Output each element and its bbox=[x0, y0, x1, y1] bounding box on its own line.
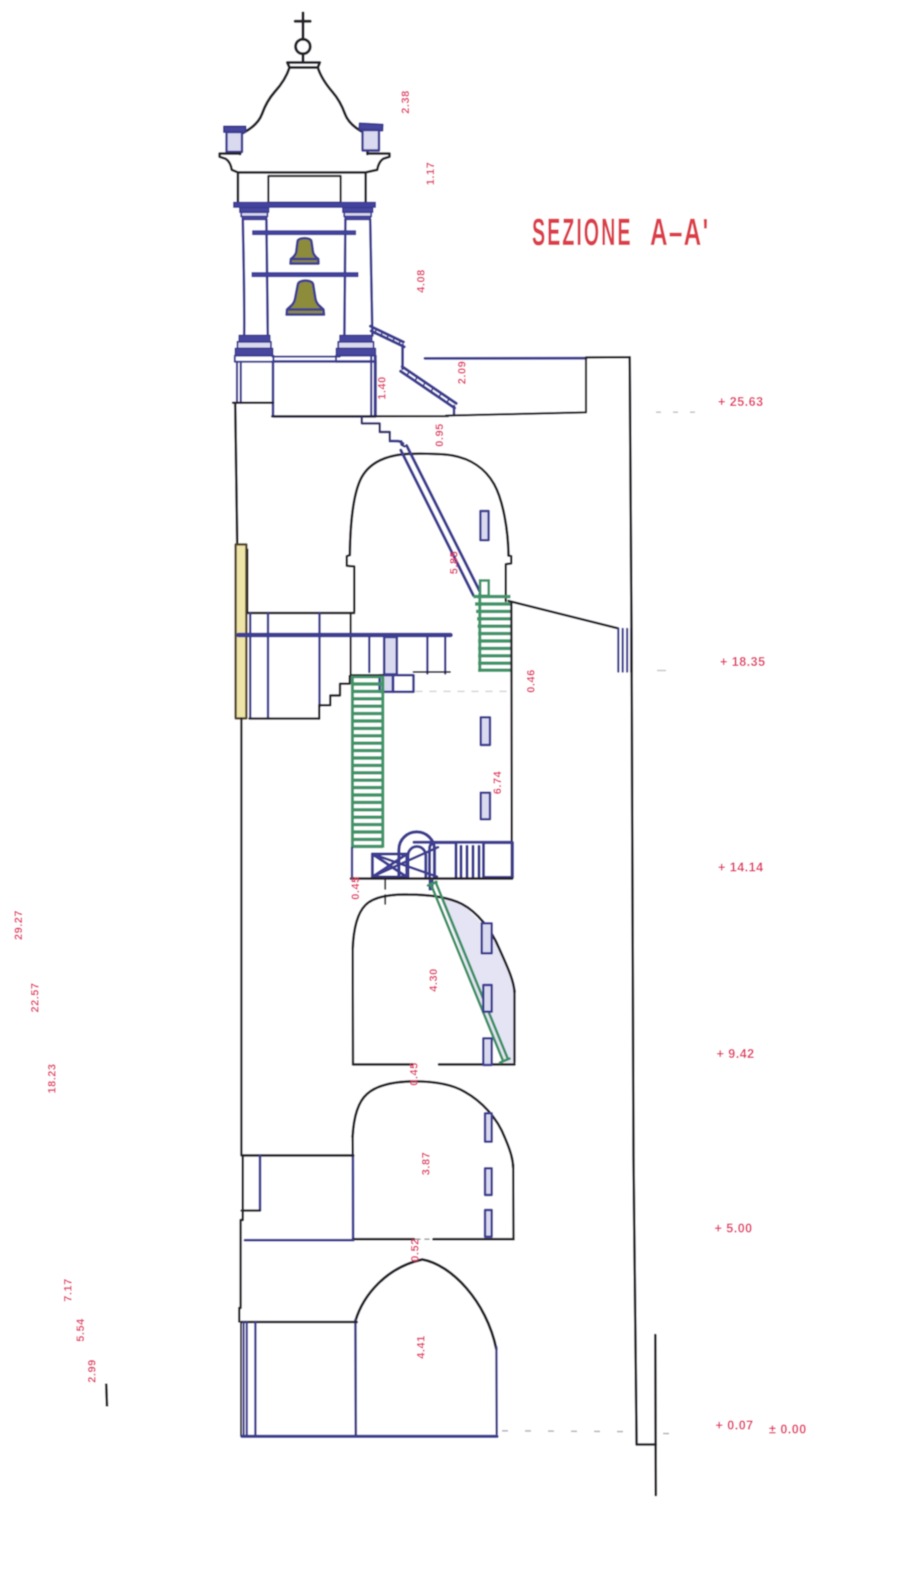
svg-text:5.54: 5.54 bbox=[75, 1318, 87, 1342]
svg-text:5.85: 5.85 bbox=[449, 551, 461, 574]
svg-text:+ 14.14: + 14.14 bbox=[718, 861, 764, 875]
svg-text:4.30: 4.30 bbox=[428, 968, 440, 991]
svg-text:4.08: 4.08 bbox=[416, 269, 428, 292]
svg-text:0.45: 0.45 bbox=[409, 1062, 421, 1085]
svg-text:1.17: 1.17 bbox=[425, 162, 437, 185]
svg-text:0.46: 0.46 bbox=[526, 669, 538, 692]
svg-text:+ 25.63: + 25.63 bbox=[718, 395, 764, 409]
svg-text:0.45: 0.45 bbox=[350, 876, 362, 899]
svg-text:7.17: 7.17 bbox=[63, 1278, 75, 1301]
svg-text:± 0.00: ± 0.00 bbox=[769, 1423, 807, 1437]
svg-text:29.27: 29.27 bbox=[13, 910, 25, 940]
svg-text:+ 5.00: + 5.00 bbox=[715, 1222, 753, 1236]
svg-text:6.74: 6.74 bbox=[492, 770, 504, 794]
svg-text:4.41: 4.41 bbox=[416, 1335, 428, 1358]
svg-text:0.95: 0.95 bbox=[434, 423, 446, 446]
svg-text:SEZIONE: SEZIONE bbox=[532, 212, 633, 253]
svg-text:A–A': A–A' bbox=[650, 210, 710, 253]
svg-text:2.38: 2.38 bbox=[400, 90, 412, 113]
svg-text:2.99: 2.99 bbox=[87, 1359, 99, 1382]
svg-text:+ 0.07: + 0.07 bbox=[716, 1419, 754, 1433]
svg-text:1.40: 1.40 bbox=[377, 376, 389, 399]
svg-text:+ 9.42: + 9.42 bbox=[717, 1047, 755, 1061]
svg-text:2.09: 2.09 bbox=[457, 361, 469, 384]
svg-text:0.52: 0.52 bbox=[410, 1238, 422, 1261]
svg-text:3.87: 3.87 bbox=[421, 1152, 433, 1175]
svg-text:18.23: 18.23 bbox=[47, 1063, 59, 1093]
svg-text:22.57: 22.57 bbox=[30, 982, 42, 1012]
svg-text:+ 18.35: + 18.35 bbox=[720, 655, 766, 669]
